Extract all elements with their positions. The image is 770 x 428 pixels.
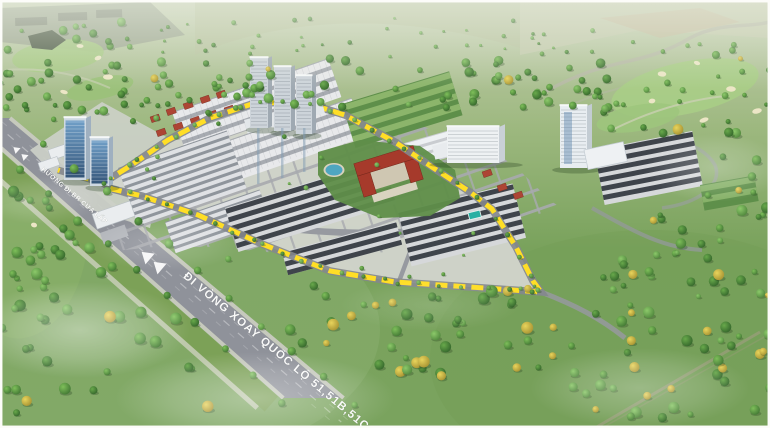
masterplan-aerial-render: HƯỚNG ĐI BR CỬA LẤP ĐI VÒNG XOAY QUỐC LỘ… xyxy=(0,0,770,428)
top-haze xyxy=(0,0,770,90)
mist-patch xyxy=(90,219,240,271)
render-canvas: HƯỚNG ĐI BR CỬA LẤP ĐI VÒNG XOAY QUỐC LỘ… xyxy=(0,0,770,428)
mist-patch xyxy=(340,279,520,331)
mist-patch xyxy=(530,348,750,428)
park-pond xyxy=(326,165,343,176)
